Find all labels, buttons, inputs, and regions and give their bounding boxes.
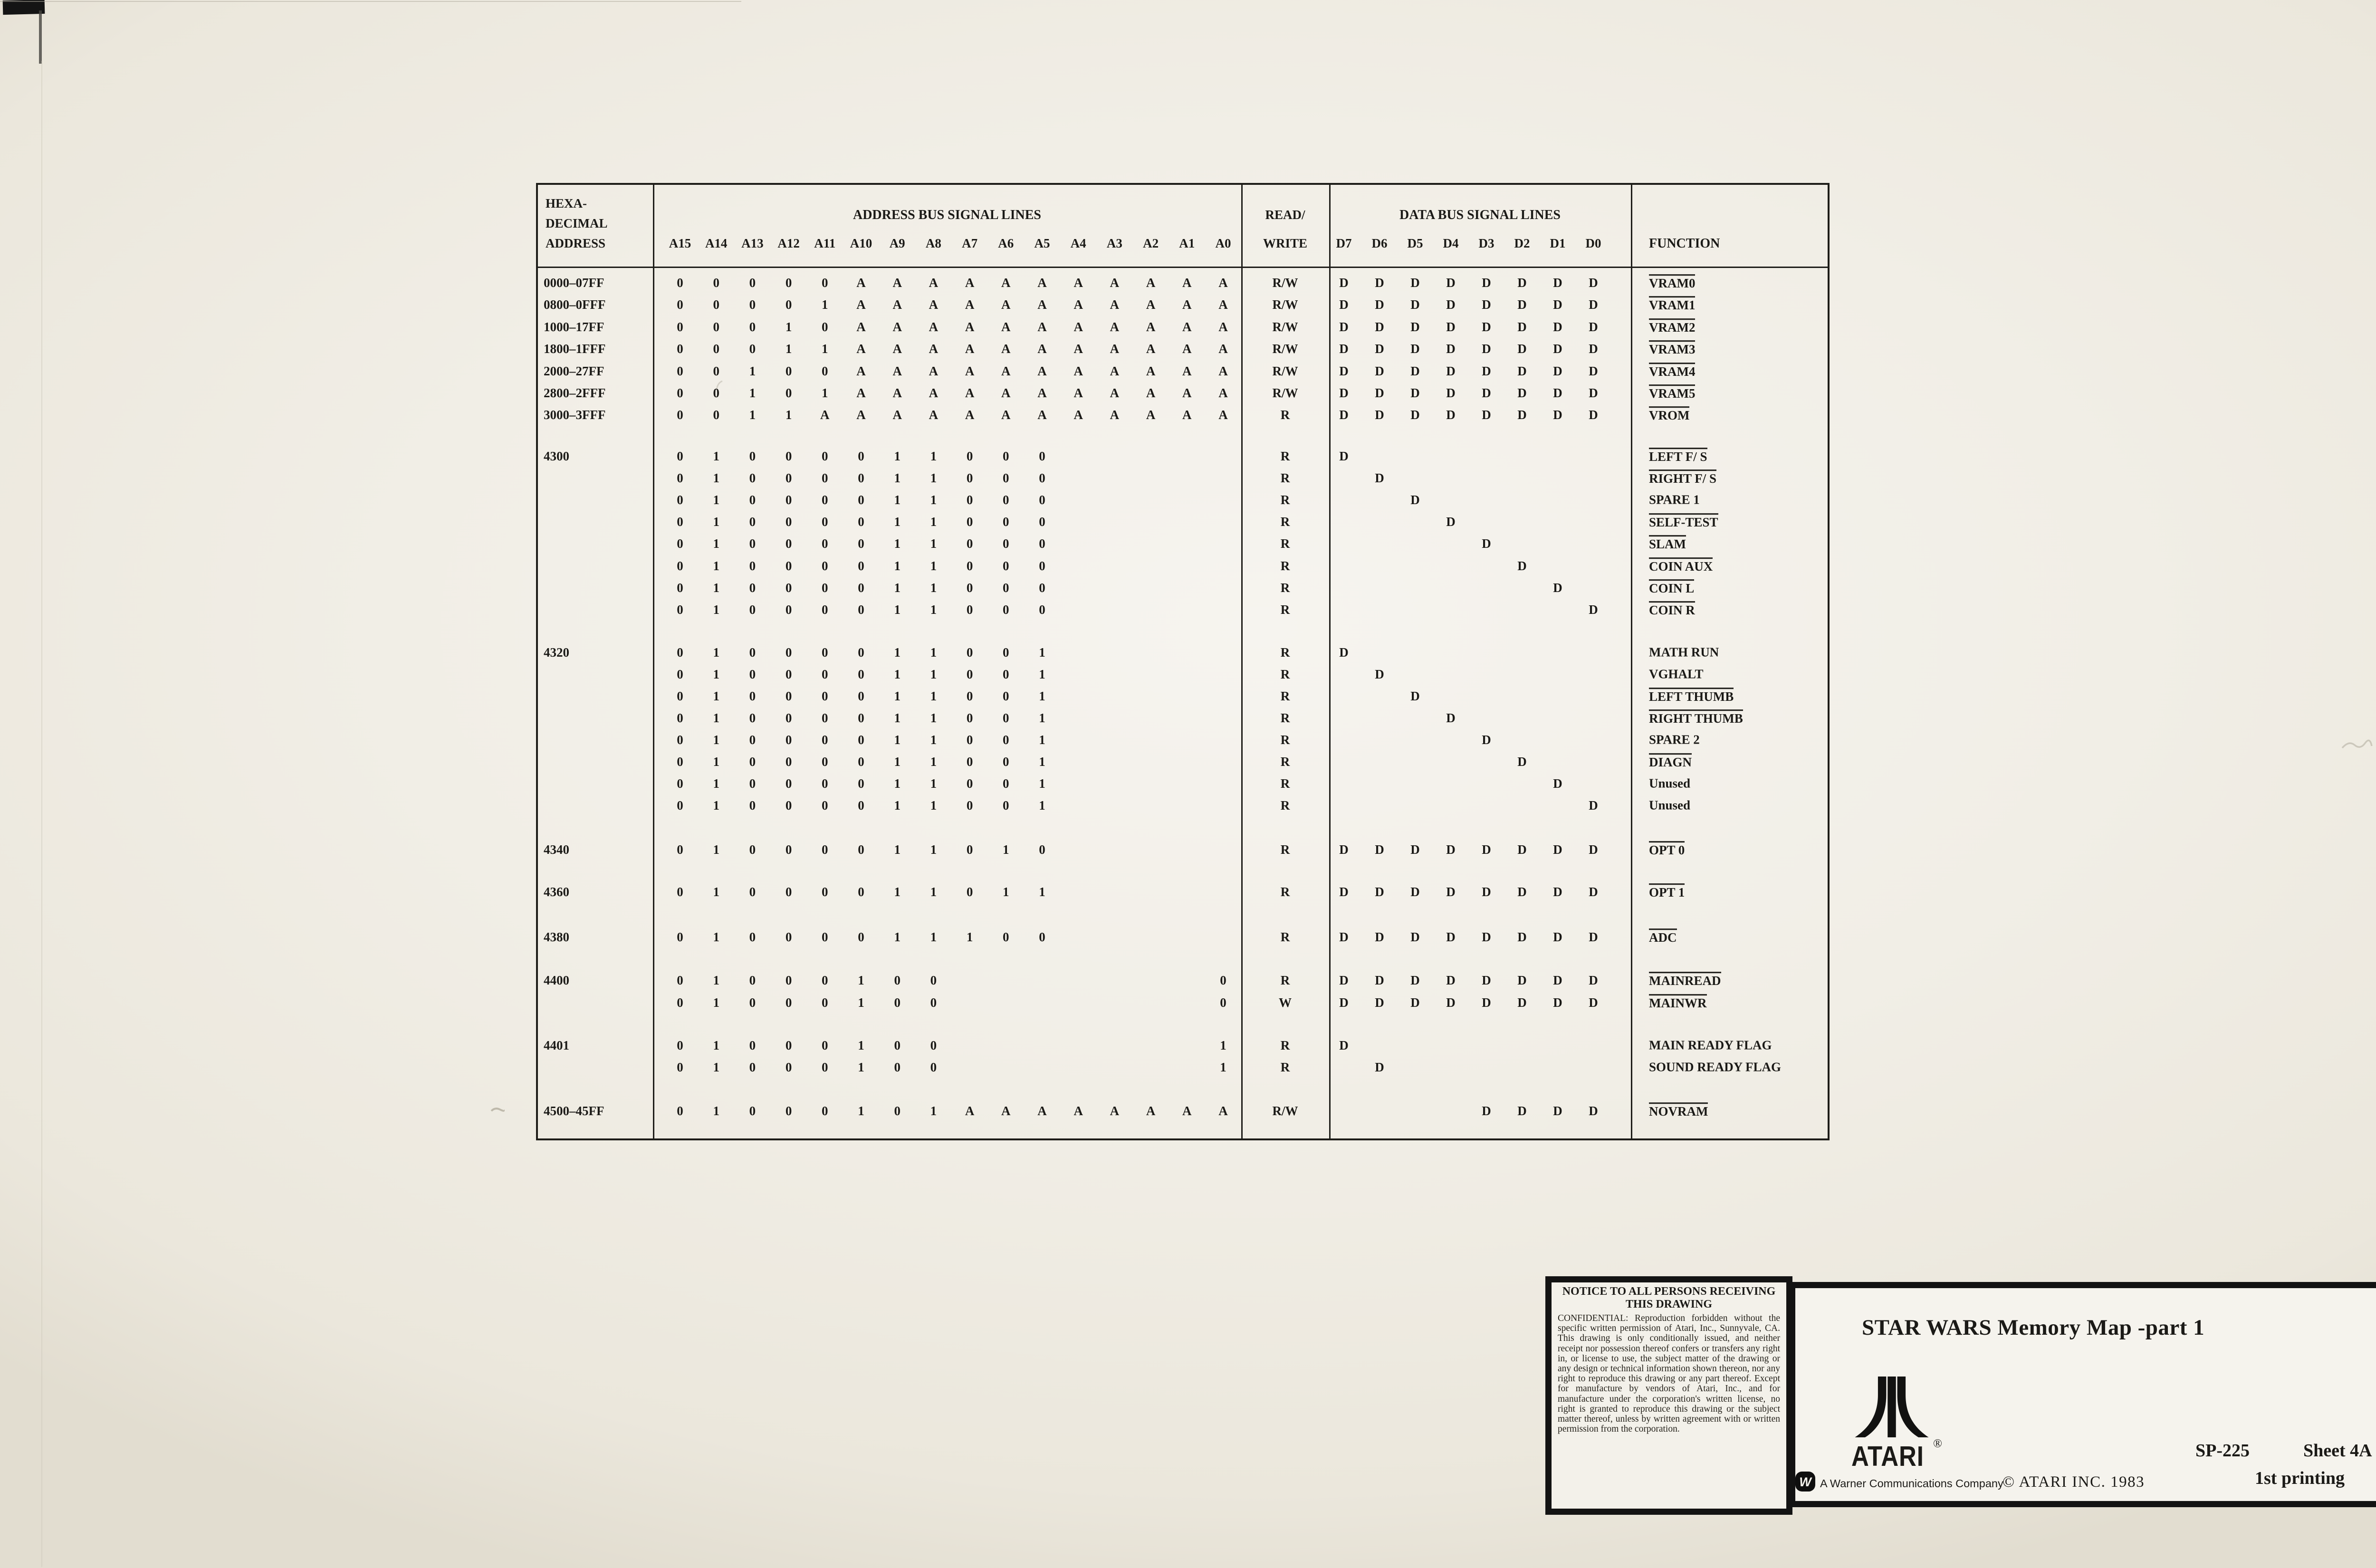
address-bit-value: 0 [952, 751, 988, 773]
address-bit-value: 0 [843, 467, 879, 489]
address-bit-value: 0 [1024, 599, 1060, 621]
data-bit-value: D [1469, 404, 1504, 426]
address-bit-value: 0 [662, 707, 698, 729]
address-bit-value: 0 [915, 1034, 951, 1056]
drawing-title: STAR WARS Memory Map -part 1 [1862, 1315, 2204, 1340]
table-row: 01000011001RDLEFT THUMB [538, 685, 1828, 707]
address-bit-value: 0 [807, 555, 843, 577]
data-bit-value: D [1576, 360, 1611, 382]
address-bit-value: 0 [771, 467, 807, 489]
function-name: COIN AUX [1649, 557, 1713, 574]
address-bit-label: A10 [843, 236, 879, 251]
data-bit-value: D [1469, 992, 1504, 1013]
address-bit-value: A [1169, 316, 1205, 338]
address-bit-value: A [952, 404, 988, 426]
address-bit-value: 0 [662, 1034, 698, 1056]
address-bit-value: A [988, 404, 1024, 426]
address-bit-value: 0 [771, 577, 807, 599]
read-write-flag: R [1241, 969, 1329, 991]
address-bit-value: 1 [915, 555, 951, 577]
address-bit-value: 0 [734, 992, 770, 1013]
data-bit-value: D [1469, 839, 1504, 860]
address-bit-value: 0 [662, 969, 698, 991]
data-bit-value: D [1362, 272, 1398, 294]
address-bit-value: A [843, 272, 879, 294]
notice-body-text: CONFIDENTIAL: Reproduction forbidden wit… [1558, 1313, 1780, 1434]
warner-communications-logo-icon: W [1795, 1472, 1815, 1492]
address-bit-value: 0 [662, 1100, 698, 1122]
atari-fuji-logo-icon [1854, 1377, 1929, 1437]
address-bit-value: A [1169, 294, 1205, 316]
address-bit-value: 0 [662, 360, 698, 382]
address-bit-value: 0 [734, 729, 770, 751]
address-bit-value: 0 [771, 599, 807, 621]
function-name: Unused [1649, 798, 1690, 812]
address-bit-value: 0 [807, 1056, 843, 1078]
address-bit-value: 0 [807, 641, 843, 663]
address-bit-value: 0 [952, 467, 988, 489]
table-row: 01000011000RDSLAM [538, 533, 1828, 555]
table-row: 2800–2FFF00101AAAAAAAAAAAR/WDDDDDDDDVRAM… [538, 382, 1828, 404]
data-bit-value: D [1433, 316, 1469, 338]
address-bit-value: 1 [879, 881, 915, 903]
data-bit-value: D [1469, 533, 1504, 555]
address-bit-value: 0 [771, 1056, 807, 1078]
address-bit-value: 1 [879, 685, 915, 707]
address-bit-value: 0 [988, 685, 1024, 707]
function-name: VRAM2 [1649, 318, 1695, 335]
address-bit-value: 0 [807, 881, 843, 903]
data-bit-value: D [1469, 382, 1504, 404]
read-write-flag: R [1241, 751, 1329, 773]
table-row: 1800–1FFF00011AAAAAAAAAAAR/WDDDDDDDDVRAM… [538, 338, 1828, 360]
data-bit-value: D [1362, 839, 1398, 860]
table-row: 01000011001RDSPARE 2 [538, 729, 1828, 751]
address-bit-value: 0 [698, 360, 734, 382]
function-name: MATH RUN [1649, 645, 1719, 659]
address-bit-value: 1 [915, 533, 951, 555]
data-bit-value: D [1362, 992, 1398, 1013]
address-bit-value: 1 [771, 316, 807, 338]
address-bit-value: 1 [698, 751, 734, 773]
address-bit-value: A [915, 338, 951, 360]
address-bit-value: 0 [843, 707, 879, 729]
read-write-flag: R [1241, 685, 1329, 707]
address-bit-value: 1 [698, 992, 734, 1013]
data-bit-value: D [1362, 467, 1398, 489]
function-name: RIGHT F/ S [1649, 469, 1716, 486]
read-write-flag: R [1241, 404, 1329, 426]
data-bit-value: D [1326, 1034, 1362, 1056]
hex-address-header-line: HEXA- [546, 196, 587, 211]
address-bit-value: 0 [879, 992, 915, 1013]
address-bit-value: 0 [771, 294, 807, 316]
address-bit-value: A [1096, 272, 1132, 294]
read-write-flag: R [1241, 881, 1329, 903]
address-bit-value: 1 [879, 663, 915, 685]
address-bit-value: 0 [734, 467, 770, 489]
address-bit-value: 0 [807, 685, 843, 707]
address-bus-section-title: ADDRESS BUS SIGNAL LINES [653, 208, 1241, 223]
address-bit-value: 1 [879, 489, 915, 511]
address-bit-value: A [1060, 382, 1096, 404]
address-bit-value: 0 [879, 1056, 915, 1078]
address-bit-value: 0 [662, 751, 698, 773]
address-bit-value: 0 [807, 969, 843, 991]
address-bit-value: 0 [952, 729, 988, 751]
address-bit-value: 1 [771, 404, 807, 426]
address-bit-value: 0 [807, 489, 843, 511]
address-bit-value: 0 [662, 881, 698, 903]
hex-address: 0000–07FF [544, 272, 604, 294]
address-bit-label: A3 [1096, 236, 1132, 251]
address-bit-value: 0 [698, 294, 734, 316]
address-bit-value: A [952, 1100, 988, 1122]
address-bit-value: 1 [698, 511, 734, 533]
address-bit-value: 0 [662, 338, 698, 360]
address-bit-label: A8 [915, 236, 951, 251]
hex-address: 4340 [544, 839, 569, 860]
read-write-flag: R [1241, 773, 1329, 794]
data-bit-value: D [1398, 839, 1433, 860]
address-bit-value: 0 [771, 445, 807, 467]
data-bit-value: D [1398, 404, 1433, 426]
function-name: RIGHT THUMB [1649, 709, 1743, 726]
address-bit-label: A15 [662, 236, 698, 251]
address-bit-value: 0 [952, 489, 988, 511]
address-bit-value: 0 [843, 663, 879, 685]
address-bit-value: 0 [771, 707, 807, 729]
table-row: 0000–07FF00000AAAAAAAAAAAR/WDDDDDDDDVRAM… [538, 272, 1828, 294]
data-bit-value: D [1504, 360, 1540, 382]
address-bit-value: 0 [698, 338, 734, 360]
address-bit-label: A7 [952, 236, 988, 251]
address-bit-value: A [1133, 1100, 1169, 1122]
address-bit-value: 1 [879, 467, 915, 489]
address-bit-value: 0 [879, 1100, 915, 1122]
address-bit-value: 0 [771, 663, 807, 685]
data-bit-value: D [1540, 773, 1576, 794]
address-bit-value: 0 [988, 663, 1024, 685]
address-bit-value: 0 [1024, 489, 1060, 511]
data-bit-value: D [1504, 404, 1540, 426]
read-write-header-line: WRITE [1241, 236, 1329, 251]
address-bit-value: A [1205, 338, 1241, 360]
address-bit-value: 0 [771, 272, 807, 294]
address-bit-value: 0 [952, 839, 988, 860]
address-bit-label: A11 [807, 236, 843, 251]
address-bit-value: 1 [734, 360, 770, 382]
address-bit-value: 1 [698, 707, 734, 729]
data-bit-value: D [1576, 969, 1611, 991]
read-write-flag: R/W [1241, 1100, 1329, 1122]
title-block: STAR WARS Memory Map -part 1 ATARI ® W A… [1789, 1282, 2376, 1507]
address-bit-value: A [1133, 272, 1169, 294]
address-bit-value: 1 [698, 1056, 734, 1078]
address-bit-value: A [1024, 272, 1060, 294]
data-bit-label: D7 [1326, 236, 1362, 251]
hex-address: 4380 [544, 926, 569, 948]
data-bit-value: D [1433, 926, 1469, 948]
data-bus-section-title: DATA BUS SIGNAL LINES [1329, 208, 1631, 223]
address-bit-value: 0 [662, 404, 698, 426]
address-bit-value: A [1096, 294, 1132, 316]
address-bit-value: 1 [843, 1100, 879, 1122]
function-name: VRAM1 [1649, 296, 1695, 313]
address-bit-value: 0 [734, 577, 770, 599]
address-bit-value: A [1169, 1100, 1205, 1122]
function-name: VRAM3 [1649, 340, 1695, 356]
function-name: LEFT THUMB [1649, 688, 1734, 704]
address-bit-value: 0 [807, 707, 843, 729]
address-bit-value: A [952, 360, 988, 382]
function-name: VRAM4 [1649, 363, 1695, 379]
address-bit-value: 0 [915, 1056, 951, 1078]
address-bit-value: 0 [843, 751, 879, 773]
warner-company-line: A Warner Communications Company [1820, 1477, 2003, 1490]
address-bit-value: A [988, 1100, 1024, 1122]
address-bit-value: 0 [807, 926, 843, 948]
address-bit-value: 1 [915, 1100, 951, 1122]
table-row: 436001000011011RDDDDDDDDOPT 1 [538, 881, 1828, 903]
address-bit-value: 0 [988, 511, 1024, 533]
data-bit-value: D [1576, 404, 1611, 426]
data-bit-value: D [1540, 926, 1576, 948]
read-write-flag: R [1241, 577, 1329, 599]
address-bit-value: 0 [771, 969, 807, 991]
data-bit-value: D [1362, 382, 1398, 404]
address-bit-value: 1 [879, 794, 915, 816]
data-bit-value: D [1540, 360, 1576, 382]
address-bit-value: 0 [734, 663, 770, 685]
address-bit-value: 0 [843, 511, 879, 533]
data-bit-value: D [1540, 881, 1576, 903]
data-bit-value: D [1326, 839, 1362, 860]
document-number: SP-225 [2195, 1440, 2250, 1461]
data-bit-value: D [1576, 992, 1611, 1013]
address-bit-value: 0 [807, 360, 843, 382]
address-bit-value: 0 [988, 729, 1024, 751]
address-bit-value: 0 [734, 338, 770, 360]
data-bit-value: D [1504, 1100, 1540, 1122]
data-bit-value: D [1433, 272, 1469, 294]
address-bit-value: A [1096, 338, 1132, 360]
data-bit-label: D4 [1433, 236, 1469, 251]
address-bit-value: 0 [662, 294, 698, 316]
address-bit-value: 0 [952, 511, 988, 533]
address-bit-value: A [1024, 294, 1060, 316]
address-bit-value: 0 [879, 1034, 915, 1056]
data-bit-value: D [1540, 272, 1576, 294]
address-bit-value: A [1205, 272, 1241, 294]
address-bit-value: 0 [734, 489, 770, 511]
address-bit-value: 1 [698, 881, 734, 903]
address-bit-value: 1 [734, 404, 770, 426]
address-bit-value: 0 [952, 707, 988, 729]
data-bit-value: D [1576, 1100, 1611, 1122]
data-bit-value: D [1398, 382, 1433, 404]
address-bit-value: 0 [807, 992, 843, 1013]
address-bit-value: 1 [1024, 773, 1060, 794]
address-bit-value: 0 [662, 663, 698, 685]
address-bit-value: 1 [915, 467, 951, 489]
address-bit-value: 0 [734, 926, 770, 948]
table-row: 010001000WDDDDDDDDMAINWR [538, 992, 1828, 1013]
address-bit-value: 0 [843, 533, 879, 555]
address-bit-value: 0 [952, 881, 988, 903]
address-bit-value: 0 [1205, 992, 1241, 1013]
address-bit-value: 0 [771, 533, 807, 555]
table-row: 01000011001RDUnused [538, 794, 1828, 816]
address-bit-value: 0 [807, 316, 843, 338]
address-bit-value: 0 [1024, 926, 1060, 948]
address-bit-value: 0 [734, 1034, 770, 1056]
data-bit-value: D [1398, 926, 1433, 948]
address-bit-value: 1 [915, 511, 951, 533]
address-bit-value: A [1060, 338, 1096, 360]
data-bit-value: D [1469, 729, 1504, 751]
function-name: Unused [1649, 776, 1690, 790]
data-bit-label: D5 [1398, 236, 1433, 251]
hex-address: 4401 [544, 1034, 569, 1056]
address-bit-value: 0 [1024, 839, 1060, 860]
data-bit-value: D [1540, 382, 1576, 404]
data-bit-value: D [1326, 969, 1362, 991]
address-bit-value: A [1024, 316, 1060, 338]
notice-title-line: THIS DRAWING [1558, 1298, 1780, 1311]
address-bit-value: A [1205, 404, 1241, 426]
data-bit-value: D [1504, 382, 1540, 404]
address-bit-value: 0 [843, 729, 879, 751]
scan-artifact-corner-tail [39, 10, 42, 64]
read-write-flag: R/W [1241, 338, 1329, 360]
address-bit-value: 1 [698, 489, 734, 511]
address-bit-value: 0 [807, 751, 843, 773]
address-bit-value: 0 [807, 445, 843, 467]
address-bit-value: 0 [734, 641, 770, 663]
address-bit-value: A [1133, 294, 1169, 316]
table-row: 01000011001RDDIAGN [538, 751, 1828, 773]
address-bit-value: 1 [807, 382, 843, 404]
read-write-flag: R [1241, 511, 1329, 533]
table-row: 01000011000RDCOIN AUX [538, 555, 1828, 577]
data-bit-value: D [1540, 839, 1576, 860]
address-bit-value: 1 [1024, 641, 1060, 663]
read-write-flag: R [1241, 555, 1329, 577]
address-bit-value: 0 [1024, 467, 1060, 489]
data-bit-value: D [1576, 338, 1611, 360]
function-name: SPARE 2 [1649, 732, 1700, 746]
address-bit-value: 0 [952, 685, 988, 707]
address-bit-value: 1 [698, 467, 734, 489]
address-bit-value: A [1205, 294, 1241, 316]
data-bit-value: D [1362, 1056, 1398, 1078]
address-bit-value: 1 [843, 1056, 879, 1078]
address-bit-value: 0 [771, 881, 807, 903]
data-bit-value: D [1504, 272, 1540, 294]
confidentiality-notice-box: NOTICE TO ALL PERSONS RECEIVING THIS DRA… [1545, 1276, 1792, 1515]
table-row: 01000011000RDCOIN L [538, 577, 1828, 599]
address-bit-value: 1 [698, 641, 734, 663]
address-bit-value: 0 [843, 555, 879, 577]
address-bit-value: 1 [915, 926, 951, 948]
address-bit-value: 0 [843, 926, 879, 948]
address-bit-value: 0 [988, 577, 1024, 599]
data-bit-value: D [1362, 316, 1398, 338]
data-bit-value: D [1362, 338, 1398, 360]
read-write-flag: R/W [1241, 360, 1329, 382]
address-bit-value: 0 [807, 577, 843, 599]
function-name: DIAGN [1649, 753, 1692, 769]
address-bit-value: A [988, 316, 1024, 338]
address-bit-value: A [988, 382, 1024, 404]
address-bit-value: 0 [734, 839, 770, 860]
data-bit-value: D [1433, 969, 1469, 991]
address-bit-value: 0 [734, 751, 770, 773]
address-bit-value: 1 [698, 926, 734, 948]
notice-title: NOTICE TO ALL PERSONS RECEIVING THIS DRA… [1558, 1285, 1780, 1311]
address-bit-value: 0 [843, 599, 879, 621]
address-bit-value: 1 [1024, 794, 1060, 816]
address-bit-value: 0 [662, 926, 698, 948]
address-bit-value: 1 [879, 533, 915, 555]
data-bit-value: D [1362, 404, 1398, 426]
address-bit-value: A [1205, 382, 1241, 404]
address-bit-value: 0 [734, 555, 770, 577]
data-bit-value: D [1326, 641, 1362, 663]
address-bit-value: 1 [698, 839, 734, 860]
data-bit-label: D0 [1576, 236, 1611, 251]
hex-address: 1800–1FFF [544, 338, 605, 360]
address-bit-value: 0 [734, 685, 770, 707]
data-bit-label: D6 [1362, 236, 1398, 251]
drawing-sheet: HEXA- DECIMAL ADDRESS ADDRESS BUS SIGNAL… [0, 0, 2376, 1568]
address-bit-value: 0 [843, 794, 879, 816]
table-row: 4400010001000RDDDDDDDDMAINREAD [538, 969, 1828, 991]
address-bit-value: A [1096, 382, 1132, 404]
address-bit-value: 0 [807, 511, 843, 533]
function-name: ADC [1649, 928, 1677, 945]
table-row: 010001001RDSOUND READY FLAG [538, 1056, 1828, 1078]
address-bit-value: A [1133, 360, 1169, 382]
address-bit-value: 0 [952, 533, 988, 555]
data-bit-value: D [1504, 294, 1540, 316]
address-bit-value: 0 [662, 773, 698, 794]
memory-map-table: HEXA- DECIMAL ADDRESS ADDRESS BUS SIGNAL… [536, 183, 1830, 1140]
read-write-flag: R [1241, 729, 1329, 751]
address-bit-value: A [1205, 360, 1241, 382]
address-bit-value: 0 [952, 794, 988, 816]
data-bit-value: D [1504, 969, 1540, 991]
address-bit-value: 0 [952, 555, 988, 577]
hex-address: 1000–17FF [544, 316, 604, 338]
address-bit-value: 1 [698, 445, 734, 467]
data-bit-value: D [1362, 881, 1398, 903]
scan-artifact-paper-edge [41, 61, 42, 1567]
address-bit-label: A1 [1169, 236, 1205, 251]
data-bit-value: D [1540, 338, 1576, 360]
table-row: 432001000011001RDMATH RUN [538, 641, 1828, 663]
hex-address-header-line: DECIMAL [546, 216, 608, 231]
data-bit-value: D [1504, 926, 1540, 948]
data-bit-value: D [1362, 294, 1398, 316]
hex-address: 4360 [544, 881, 569, 903]
data-bit-value: D [1398, 992, 1433, 1013]
function-name: VRAM0 [1649, 274, 1695, 290]
address-bit-value: 0 [988, 926, 1024, 948]
address-bit-value: 1 [843, 992, 879, 1013]
hex-address: 0800–0FFF [544, 294, 605, 316]
